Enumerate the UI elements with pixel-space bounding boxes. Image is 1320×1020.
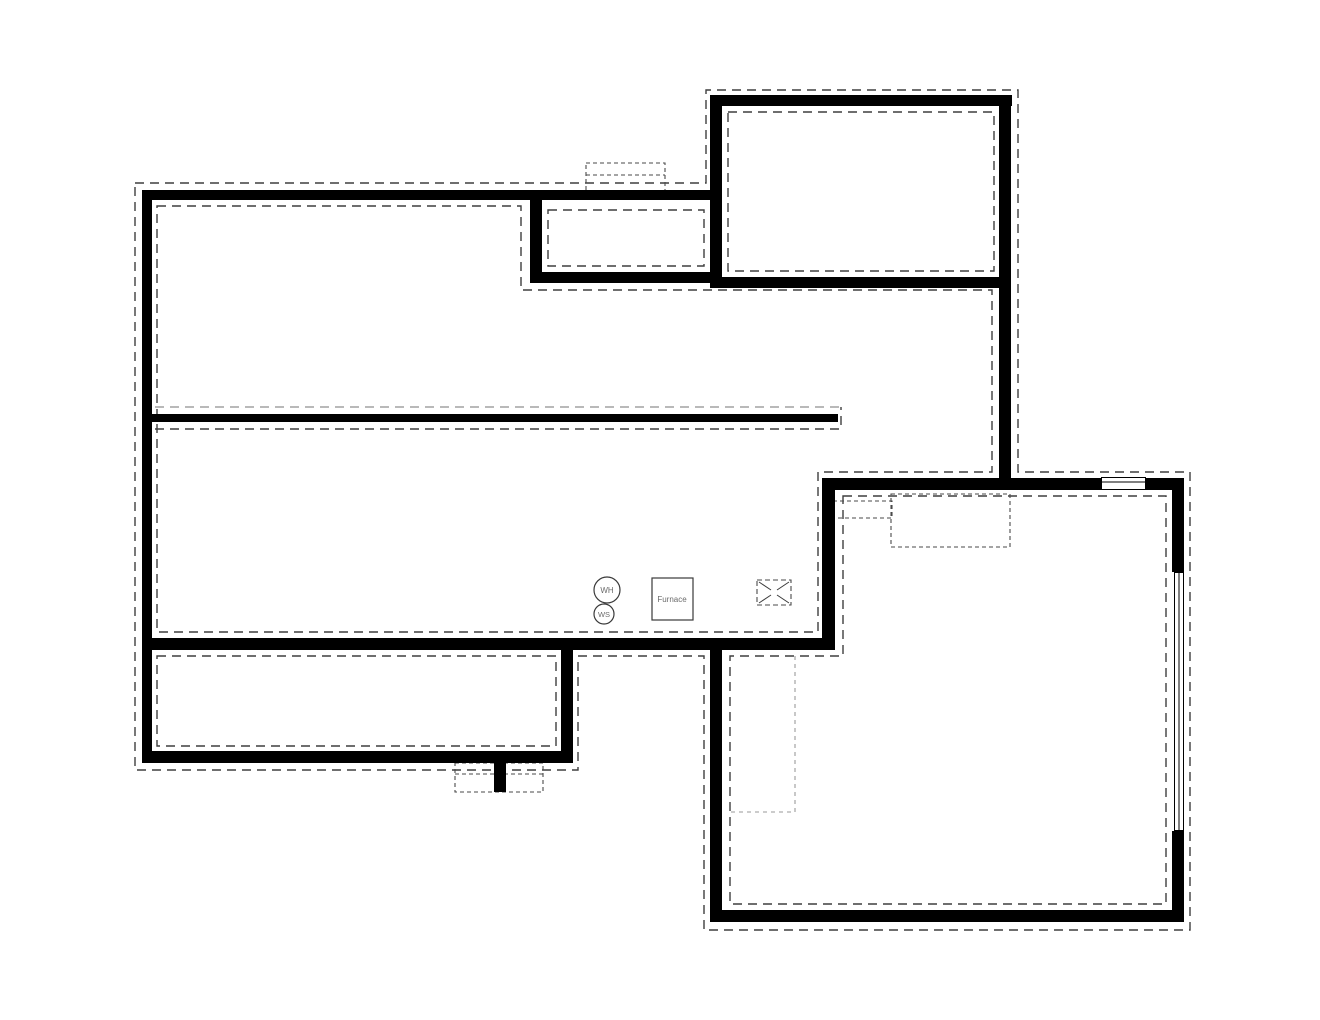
wall-garage-bottom: [710, 910, 1184, 922]
concrete-pad-symbol: [757, 580, 791, 605]
wall-recess-bottom: [530, 272, 712, 283]
wall-top-main: [142, 190, 712, 200]
window-garage-top: [1102, 478, 1146, 490]
window-garage-right: [1175, 573, 1184, 831]
floor-plan-page: WH WS Furnace: [0, 0, 1320, 1020]
wall-upper-room-left: [710, 95, 722, 288]
upper-room-inner-footing: [728, 112, 994, 271]
wall-bottom-left-room-bottom: [142, 751, 572, 763]
water-heater-label: WH: [600, 586, 614, 595]
wall-garage-top-west: [822, 478, 1101, 490]
outer-footing-outline: [135, 90, 1190, 930]
wall-garage-right-lower: [1172, 831, 1184, 922]
wall-bottom-left-room-right: [561, 648, 573, 763]
water-heater-symbol: WH: [594, 577, 620, 603]
wall-interior-mid: [150, 414, 838, 422]
chimney-footing-outline: [586, 163, 665, 192]
wall-left-main: [142, 190, 152, 763]
garage-upper-dashed-area: [891, 494, 1010, 547]
furnace-label: Furnace: [657, 595, 687, 604]
stair-outline: [730, 656, 795, 812]
porch-post-stub: [494, 754, 506, 792]
water-softener-symbol: WS: [594, 604, 614, 624]
wall-upper-room-top: [710, 95, 1012, 106]
wall-bottom-main: [142, 638, 835, 650]
bottom-left-room-inner-footing: [157, 656, 556, 746]
wall-garage-upper-left: [822, 478, 835, 650]
floor-plan-canvas: WH WS Furnace: [0, 0, 1320, 1020]
water-softener-label: WS: [598, 610, 610, 619]
wall-right-main: [999, 95, 1011, 490]
wall-garage-left: [710, 640, 722, 922]
wall-upper-room-bottom: [710, 277, 1011, 288]
garage-upper-left-dashed-area: [833, 501, 892, 518]
recess-room-inner-footing: [548, 210, 704, 266]
wall-recess-left: [530, 196, 542, 283]
wall-garage-right-upper: [1172, 478, 1184, 572]
furnace-symbol: Furnace: [652, 578, 693, 620]
